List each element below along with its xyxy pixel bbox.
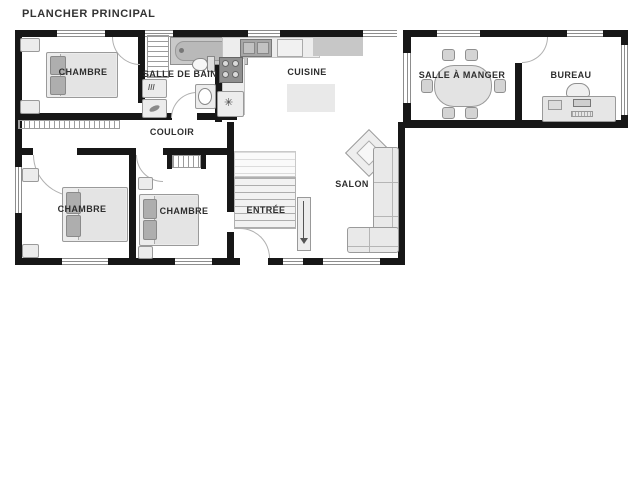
sofa-seam — [374, 216, 398, 217]
wall — [15, 148, 33, 155]
burner — [222, 60, 229, 67]
wall — [280, 30, 363, 37]
sofa-seam — [374, 182, 398, 183]
wall — [227, 122, 234, 212]
sink-basin — [243, 42, 255, 54]
room-label-dining: SALLE À MANGER — [419, 70, 506, 80]
nightstand-icon — [20, 38, 40, 52]
chair-icon — [465, 49, 478, 61]
wall — [403, 37, 411, 53]
wall — [212, 258, 240, 265]
counter-peninsula — [313, 37, 363, 56]
monitor-icon — [573, 99, 591, 107]
window — [175, 258, 212, 265]
pillow-icon — [66, 215, 81, 237]
wall — [480, 30, 567, 37]
door-swing-icon — [171, 92, 197, 118]
room-label-bathroom: SALLE DE BAIN — [143, 69, 217, 79]
bed-blanket — [78, 189, 126, 240]
stairs-icon — [234, 177, 296, 229]
window — [323, 258, 380, 265]
printer-icon — [548, 100, 562, 110]
sofa-icon — [347, 227, 399, 253]
room-label-bedroom2: CHAMBRE — [58, 204, 107, 214]
window — [437, 30, 480, 37]
window — [62, 258, 108, 265]
pillow-icon — [50, 76, 66, 95]
chair-icon — [442, 49, 455, 61]
sofa-back — [348, 246, 398, 247]
room-label-kitchen: CUISINE — [287, 67, 326, 77]
office-chair-icon — [566, 83, 590, 97]
kitchen-island — [287, 84, 335, 112]
closet-rod-icon — [172, 155, 201, 168]
wall — [201, 155, 206, 169]
window — [15, 167, 22, 213]
chair-icon — [421, 79, 433, 93]
stairs-landing — [234, 151, 296, 177]
wall — [129, 155, 136, 265]
room-label-bedroom3: CHAMBRE — [160, 206, 209, 216]
nightstand-icon — [20, 100, 40, 114]
window — [363, 30, 397, 37]
wall — [108, 258, 175, 265]
door-swing-icon — [240, 228, 270, 258]
burner — [222, 71, 229, 78]
fridge-fan-glyph: ✳ — [224, 98, 233, 109]
room-label-living: SALON — [335, 179, 369, 189]
dryer-vent-glyph: /// — [148, 84, 155, 92]
wall — [303, 258, 323, 265]
sink-icon — [198, 88, 212, 105]
page-title: PLANCHER PRINCIPAL — [22, 8, 155, 20]
burner — [232, 60, 239, 67]
window — [248, 30, 280, 37]
stairs-arrow-head — [300, 238, 308, 244]
wall — [173, 30, 248, 37]
nightstand-icon — [138, 177, 153, 190]
wall — [77, 148, 136, 155]
wall — [403, 103, 411, 120]
chair-icon — [465, 107, 478, 119]
wall — [403, 30, 437, 37]
floor-plan: PLANCHER PRINCIPAL — [0, 0, 640, 480]
window — [283, 258, 303, 265]
pillow-icon — [143, 220, 157, 240]
sink-basin — [257, 42, 269, 54]
wall — [163, 148, 233, 155]
door-swing-icon — [522, 37, 548, 63]
faucet-icon — [179, 48, 184, 53]
wall — [621, 115, 628, 128]
bed-blanket — [154, 196, 198, 244]
window — [57, 30, 105, 37]
wall — [515, 63, 522, 120]
keyboard-icon — [571, 111, 593, 117]
wall — [268, 258, 283, 265]
room-label-hallway: COULOIR — [150, 127, 194, 137]
sofa-seam — [369, 228, 370, 252]
stairs-arrow-icon — [303, 201, 304, 239]
nightstand-icon — [138, 246, 153, 259]
wall — [15, 213, 22, 265]
window — [403, 53, 411, 103]
closet-rod-icon — [18, 120, 120, 129]
room-label-office: BUREAU — [551, 70, 592, 80]
room-label-entry: ENTRÉE — [247, 205, 286, 215]
wall — [621, 30, 628, 45]
window — [567, 30, 603, 37]
wall — [398, 122, 405, 265]
wall — [227, 232, 234, 258]
dishwasher-icon — [277, 39, 303, 57]
nightstand-icon — [22, 168, 39, 182]
chair-icon — [442, 107, 455, 119]
window — [621, 45, 628, 115]
pillow-icon — [143, 199, 157, 219]
wall — [15, 258, 62, 265]
burner — [232, 71, 239, 78]
room-label-bedroom1: CHAMBRE — [59, 67, 108, 77]
nightstand-icon — [22, 244, 39, 258]
chair-icon — [494, 79, 506, 93]
